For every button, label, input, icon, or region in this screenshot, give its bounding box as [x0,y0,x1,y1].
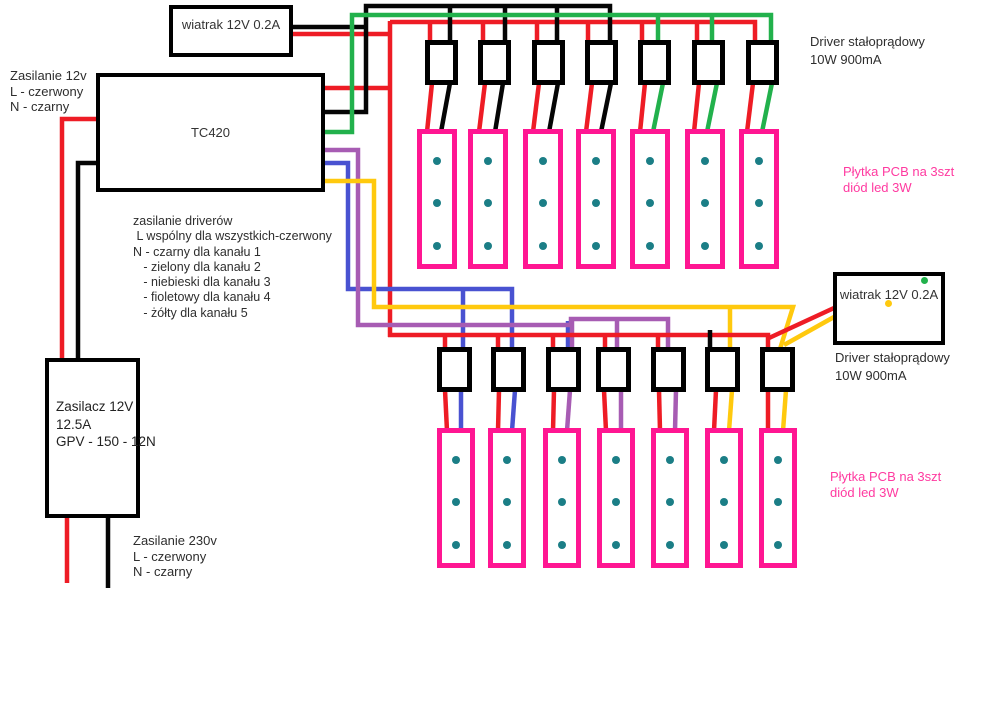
led-dot [592,242,600,250]
top-pcb-6 [685,129,725,269]
led-dot [774,498,782,506]
led-dot [666,541,674,549]
driver-label-bottom: Driver stałoprądowy 10W 900mA [835,349,950,384]
bot-driver7-out-yellow [783,390,786,431]
bottom-driver-3 [546,347,581,392]
top-pcb-1 [417,129,457,269]
led-dot [503,498,511,506]
driver-label-top: Driver stałoprądowy 10W 900mA [810,33,925,68]
bottom-pcb-3 [543,428,581,568]
bottom-driver-5 [651,347,686,392]
bottom-pcb-6 [705,428,743,568]
top-driver-6 [692,40,725,85]
top-driver3-out-black [549,83,558,132]
bottom-pcb-2 [488,428,526,568]
bot-driver6-out-red [714,390,716,431]
pcb-label-bottom: Płytka PCB na 3szt diód led 3W [830,469,941,501]
led-dot [720,498,728,506]
led-dot [612,456,620,464]
top-driver5-out-red [640,83,645,132]
bot-driver6-out-yellow [729,390,732,431]
led-dot [433,242,441,250]
mains-note: Zasilanie 230v L - czerwony N - czarny [133,533,217,580]
psu-label: Zasilacz 12V 12.5A GPV - 150 - 12N [56,398,156,451]
tc420-label: TC420 [191,125,230,140]
bot-driver5-out-purple [675,390,676,431]
bottom-driver-4 [596,347,631,392]
top-driver6-out-green [707,83,717,132]
led-dot [503,541,511,549]
led-dot [539,199,547,207]
led-dot [666,498,674,506]
led-dot [558,498,566,506]
led-dot [701,199,709,207]
led-dot [592,199,600,207]
tc420-controller-box: TC420 [96,73,325,192]
led-dot [774,541,782,549]
bot-driver2-out-red [498,390,499,431]
top-driver1-out-red [427,83,432,132]
fan-right-box: wiatrak 12V 0.2A [833,272,945,345]
wiring-diagram-canvas: wiatrak 12V 0.2A TC420 Zasilacz 12V 12.5… [0,0,1000,708]
led-dot [484,199,492,207]
fan-top-box: wiatrak 12V 0.2A [169,5,293,57]
top-pcb-2 [468,129,508,269]
top-driver-3 [532,40,565,85]
led-dot [452,541,460,549]
led-dot [558,541,566,549]
led-dot [452,498,460,506]
bottom-driver-1 [437,347,472,392]
top-driver3-out-red [533,83,539,132]
psu-black-wire [78,163,98,360]
bottom-driver-6 [705,347,740,392]
red-top-bus [390,22,755,42]
top-driver1-out-black [441,83,450,132]
led-dot [646,242,654,250]
led-dot [701,242,709,250]
bottom-pcb-4 [597,428,635,568]
bottom-pcb-5 [651,428,689,568]
top-driver7-out-red [747,83,753,132]
led-dot [539,242,547,250]
fan2-green-dot [921,277,928,284]
supply-12v-note: Zasilanie 12v L - czerwony N - czarny [10,68,87,115]
fan2-yellow-dot [885,300,892,307]
led-dot [720,456,728,464]
pcb-label-top: Płytka PCB na 3szt diód led 3W [843,164,954,196]
led-dot [503,456,511,464]
led-dot [612,498,620,506]
top-pcb-7 [739,129,779,269]
led-dot [539,157,547,165]
led-dot [701,157,709,165]
led-dot [720,541,728,549]
top-driver-5 [638,40,671,85]
top-driver2-out-red [479,83,485,132]
fan-right-label: wiatrak 12V 0.2A [840,276,938,341]
psu-box: Zasilacz 12V 12.5A GPV - 150 - 12N [45,358,140,518]
led-dot [612,541,620,549]
led-dot [666,456,674,464]
led-dot [755,157,763,165]
bot-driver3-out-red [553,390,554,431]
top-pcb-3 [523,129,563,269]
led-dot [755,199,763,207]
top-driver-4 [585,40,618,85]
top-driver-1 [425,40,458,85]
top-driver-2 [478,40,511,85]
fan-top-label: wiatrak 12V 0.2A [182,9,280,53]
led-dot [646,157,654,165]
led-dot [755,242,763,250]
top-driver5-out-green [653,83,663,132]
led-dot [558,456,566,464]
bot-driver2-out-blue [512,390,515,431]
led-dot [646,199,654,207]
led-dot [774,456,782,464]
top-pcb-5 [630,129,670,269]
led-dot [452,456,460,464]
bottom-driver-2 [491,347,526,392]
top-driver2-out-black [495,83,503,132]
top-driver4-out-red [586,83,592,132]
top-driver7-out-green [762,83,772,132]
top-pcb-4 [576,129,616,269]
driver-supply-note: zasilanie driverów L wspólny dla wszystk… [133,214,332,321]
bot-driver4-out-red [604,390,606,431]
bottom-pcb-7 [759,428,797,568]
led-dot [592,157,600,165]
top-driver4-out-black [601,83,611,132]
led-dot [484,242,492,250]
bottom-driver-7 [760,347,795,392]
bot-driver3-out-purple [567,390,570,431]
bot-driver5-out-red [659,390,660,431]
bottom-pcb-1 [437,428,475,568]
led-dot [433,199,441,207]
led-dot [433,157,441,165]
bot-driver1-out-red [445,390,447,431]
top-driver6-out-red [694,83,699,132]
top-driver-7 [746,40,779,85]
led-dot [484,157,492,165]
